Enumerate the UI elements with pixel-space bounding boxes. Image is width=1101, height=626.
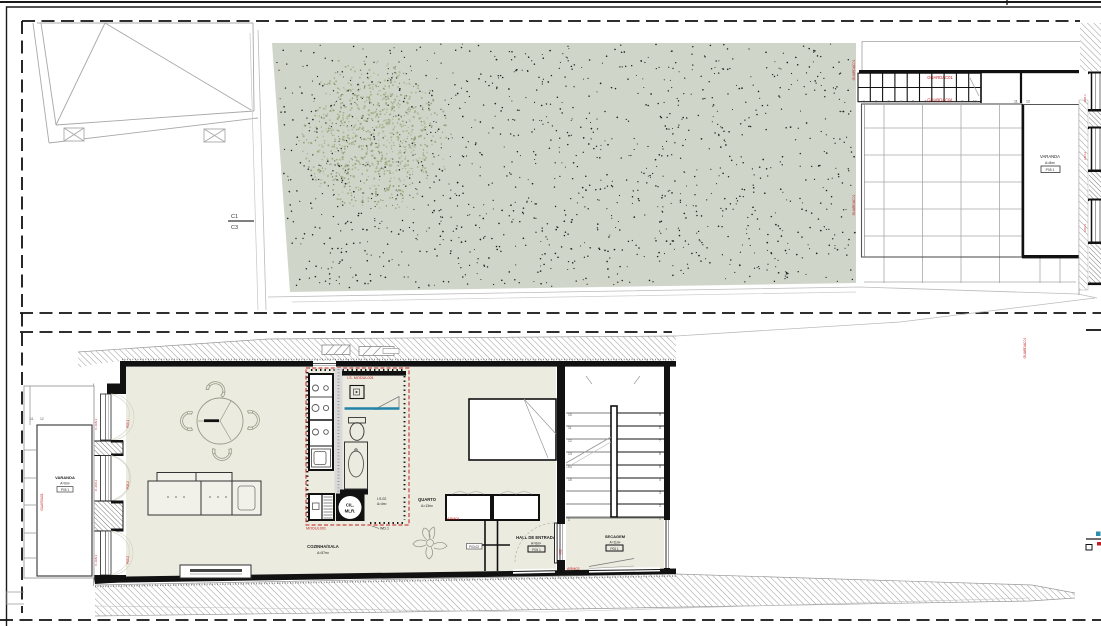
svg-text:7: 7 xyxy=(659,439,661,443)
svg-text:4: 4 xyxy=(900,100,902,104)
svg-text:MODUL001: MODUL001 xyxy=(306,527,326,531)
svg-text:GUARDAC01: GUARDAC01 xyxy=(927,75,953,80)
svg-text:C1: C1 xyxy=(231,214,238,220)
svg-text:5: 5 xyxy=(659,465,661,469)
svg-text:JAN.1: JAN.1 xyxy=(1083,152,1087,161)
svg-text:SECAGEM: SECAGEM xyxy=(605,534,626,539)
svg-text:A=13m²: A=13m² xyxy=(421,504,434,508)
svg-text:15: 15 xyxy=(568,478,572,482)
svg-text:6: 6 xyxy=(659,452,661,456)
svg-text:6: 6 xyxy=(925,100,927,104)
svg-text:11: 11 xyxy=(568,426,572,430)
svg-text:1: 1 xyxy=(863,100,865,104)
svg-text:3: 3 xyxy=(888,100,890,104)
svg-text:V02: V02 xyxy=(559,549,563,555)
svg-text:A=11m²: A=11m² xyxy=(609,541,620,545)
svg-text:P03.1: P03.1 xyxy=(126,420,130,429)
svg-text:11: 11 xyxy=(1014,100,1018,104)
svg-text:11: 11 xyxy=(30,417,34,421)
svg-text:2: 2 xyxy=(875,100,877,104)
svg-text:VARANDA: VARANDA xyxy=(1040,154,1060,159)
svg-text:GUARDAC01: GUARDAC01 xyxy=(1023,338,1027,359)
svg-text:4: 4 xyxy=(659,478,661,482)
svg-text:JAN.1: JAN.1 xyxy=(1083,94,1087,103)
svg-text:JAN.1: JAN.1 xyxy=(1083,224,1087,233)
svg-text:8: 8 xyxy=(659,426,661,430)
svg-text:10: 10 xyxy=(973,100,977,104)
svg-text:12: 12 xyxy=(1026,100,1030,104)
svg-text:C3: C3 xyxy=(231,225,238,231)
svg-text:14: 14 xyxy=(568,465,572,469)
svg-text:C.JAN.1: C.JAN.1 xyxy=(94,479,98,491)
svg-text:GUARDA01: GUARDA01 xyxy=(40,493,44,510)
svg-text:A=6m²: A=6m² xyxy=(60,482,69,486)
svg-text:P05 1: P05 1 xyxy=(1046,168,1055,172)
svg-text:5: 5 xyxy=(912,100,914,104)
svg-text:C.JAN.1: C.JAN.1 xyxy=(94,418,98,430)
svg-text:CIL.: CIL. xyxy=(346,503,354,508)
svg-text:12: 12 xyxy=(568,439,572,443)
svg-text:12: 12 xyxy=(40,417,44,421)
svg-text:ARM02: ARM02 xyxy=(567,567,580,571)
svg-text:2: 2 xyxy=(659,504,661,508)
svg-text:9: 9 xyxy=(659,413,661,417)
svg-text:C.JAN.1: C.JAN.1 xyxy=(94,554,98,566)
svg-text:MLR.: MLR. xyxy=(345,509,356,514)
svg-text:P05 1: P05 1 xyxy=(61,488,70,492)
svg-text:ARM01: ARM01 xyxy=(447,517,460,521)
svg-text:13: 13 xyxy=(568,452,572,456)
svg-text:P05 1: P05 1 xyxy=(610,547,619,551)
svg-text:P03.2: P03.2 xyxy=(126,556,130,565)
svg-text:QUARTO: QUARTO xyxy=(418,497,437,502)
svg-text:P03.02: P03.02 xyxy=(469,545,479,549)
svg-text:A=57m²: A=57m² xyxy=(317,551,330,555)
svg-text:A=8m²: A=8m² xyxy=(1045,161,1056,165)
svg-text:WD.1: WD.1 xyxy=(380,527,389,531)
svg-text:P03.2: P03.2 xyxy=(126,481,130,490)
svg-text:COZINHA/SALA: COZINHA/SALA xyxy=(307,544,339,549)
svg-text:VARANDA: VARANDA xyxy=(55,475,75,480)
svg-text:I.S. MODUL001: I.S. MODUL001 xyxy=(347,376,374,380)
svg-text:I.S.02: I.S.02 xyxy=(377,497,386,501)
svg-text:A=4m²: A=4m² xyxy=(377,502,386,506)
svg-text:GUARDAC01: GUARDAC01 xyxy=(852,195,856,216)
svg-text:A=6m²: A=6m² xyxy=(531,542,542,546)
svg-text:P05 1: P05 1 xyxy=(532,548,541,552)
svg-text:HALL DE ENTRADA: HALL DE ENTRADA xyxy=(516,535,556,540)
svg-text:GUARDAC01: GUARDAC01 xyxy=(852,60,856,81)
svg-text:GUARDAC01: GUARDAC01 xyxy=(927,98,953,103)
svg-text:3: 3 xyxy=(659,491,661,495)
svg-text:1: 1 xyxy=(568,518,570,522)
svg-text:10: 10 xyxy=(568,413,572,417)
svg-text:9: 9 xyxy=(961,100,963,104)
